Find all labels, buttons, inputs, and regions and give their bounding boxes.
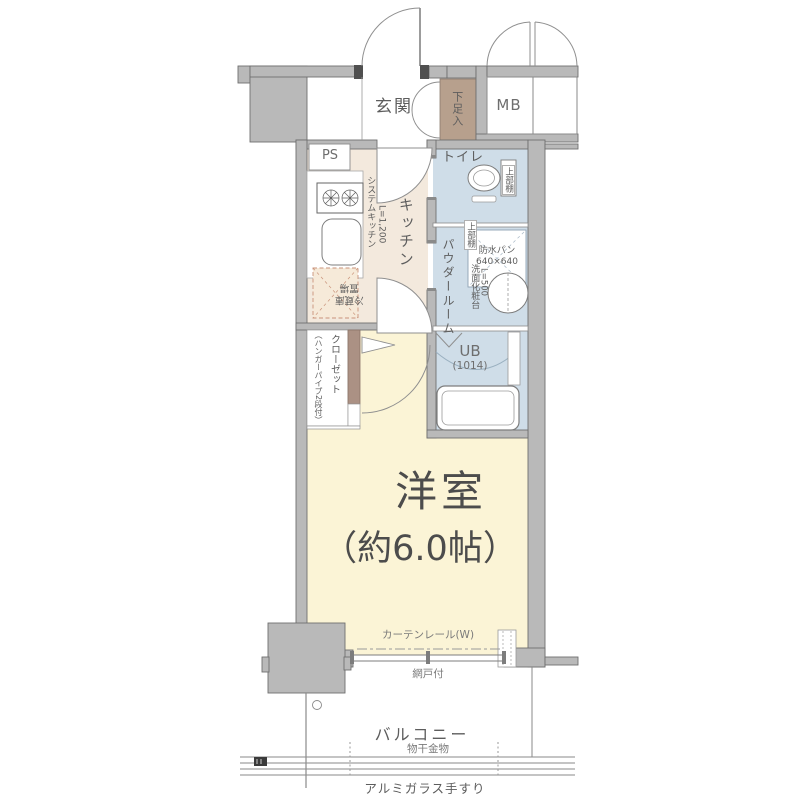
wall-ub-south [427, 430, 528, 438]
label-meter-box: MB [496, 96, 521, 115]
label-fridge-line2: 置場 [340, 282, 359, 293]
bathtub [437, 386, 519, 430]
wall-hall-right [427, 140, 528, 149]
wall-top-left-tab [238, 66, 250, 83]
wall-mb-left [476, 66, 487, 142]
toilet-bowl [468, 165, 500, 191]
wall-bl-tab-left [262, 657, 269, 672]
handrail-lines [240, 757, 575, 775]
powder-door-tick-bottom [427, 288, 436, 291]
label-system-kitchen-length: L=1,200 [375, 205, 386, 243]
wall-east-cap-top [545, 144, 578, 149]
wall-east [528, 140, 545, 667]
label-laundry-hardware: 物干金物 [407, 743, 449, 756]
toilet-base [472, 196, 496, 202]
label-genkan: 玄関 [375, 97, 413, 118]
label-main-room: 洋室 [395, 466, 487, 519]
label-closet-note: （ハンガーパイプ2段付） [313, 331, 323, 424]
wall-shoe-top [447, 66, 476, 78]
mb-door-arc-right [535, 22, 577, 66]
label-unit-bath: UB [459, 342, 480, 361]
label-pipe-space: PS [322, 148, 338, 164]
wall-entrance-left [250, 66, 362, 77]
label-kitchen: キッチン [396, 197, 415, 269]
floor-plan: 玄関 下足入 MB PS トイレ 上部棚 キッチン システムキッチン L=1,2… [0, 0, 800, 800]
wall-west [296, 140, 307, 625]
powder-door-tick-top [427, 240, 436, 243]
label-toilet: トイレ [442, 150, 484, 166]
wall-east-cap-bottom [545, 657, 578, 665]
label-balcony: バルコニー [375, 725, 470, 745]
entrance-jamb-right [420, 65, 429, 79]
label-laundry-upper-shelf: 上部棚 [464, 220, 477, 250]
wall-closet-north [296, 323, 377, 330]
closet-pole-strip [348, 330, 360, 404]
toilet-door-tick-bottom [427, 197, 436, 200]
wall-entrance-right [429, 66, 447, 78]
label-unit-bath-size: (1014) [453, 360, 488, 373]
entrance-door-arc [362, 8, 420, 66]
balcony-drain-circle [313, 701, 322, 710]
window-mullion-center [426, 651, 430, 664]
label-waterproof-pan-1: 防水パン [479, 246, 515, 257]
window-mullion-left [350, 651, 354, 664]
sink [322, 219, 361, 265]
label-fridge-line1: 冷蔵庫 [335, 294, 364, 305]
label-fridge-space: 冷蔵庫置場 [335, 281, 364, 305]
label-main-room-size: （約6.0帖） [322, 528, 518, 572]
mb-door-arc-left [487, 22, 530, 66]
label-vanity-length: L=500 [478, 268, 489, 296]
label-closet: クローゼット [327, 334, 340, 394]
wall-bl-tab-right [344, 657, 351, 670]
wall-mb-top [487, 66, 578, 77]
closet-strip-bottom [348, 404, 360, 426]
ub-counter [508, 332, 520, 385]
label-curtain-rail: カーテンレール(W) [382, 629, 474, 642]
label-toilet-upper-shelf: 上部棚 [502, 165, 515, 195]
wall-wet-west-2 [427, 198, 436, 243]
label-powder-room: パウダールーム [440, 238, 455, 336]
window-mullion-right [502, 651, 506, 664]
label-screen-door: 網戸付 [412, 668, 444, 681]
label-handrail: アルミガラス手すり [364, 781, 485, 797]
floor-plan-drawing [0, 0, 800, 800]
closet-south-line [307, 426, 360, 429]
label-shoe-cabinet: 下足入 [450, 91, 464, 127]
label-system-kitchen: システムキッチン [364, 176, 375, 248]
wall-toilet-powder-divider [433, 223, 528, 227]
entrance-jamb-left [354, 65, 363, 79]
wall-bottom-left-column [268, 623, 345, 693]
label-waterproof-pan-2: 640×640 [476, 257, 518, 268]
